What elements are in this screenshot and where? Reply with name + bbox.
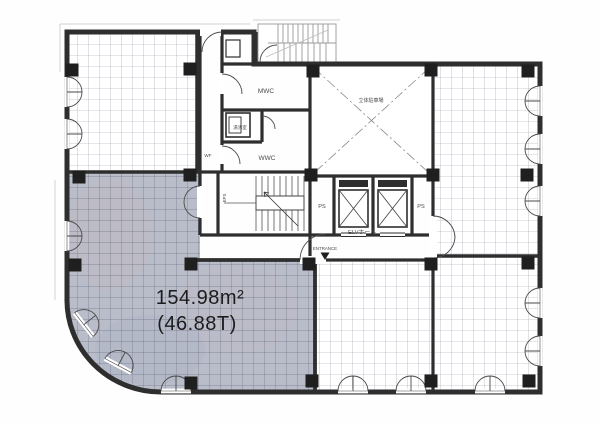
label-ps-left: PS [318, 204, 326, 210]
label-wwc: WWC [259, 155, 276, 162]
label-kitchenette: 湯沸室 [233, 124, 247, 131]
label-parking: 立体駐車場 [358, 97, 383, 104]
unit-area-tsubo: (46.88T) [157, 313, 237, 335]
label-ps-right: PS [417, 204, 425, 210]
label-mwc: MWC [258, 88, 275, 95]
floor-plan: MWC 湯沸室 WWC WF EPS 立体駐車場 PS PS ELVホール EN… [0, 0, 600, 424]
exterior-stair [258, 24, 336, 62]
label-corridor: WF [204, 153, 211, 158]
floor-plan-canvas: MWC 湯沸室 WWC WF EPS 立体駐車場 PS PS ELVホール EN… [0, 0, 600, 424]
label-entrance: ENTRANCE [313, 246, 337, 251]
unit-area-sqm: 154.98m² [156, 287, 245, 309]
label-elevator-hall: ELVホール [348, 229, 376, 236]
label-eps: EPS [222, 194, 227, 203]
